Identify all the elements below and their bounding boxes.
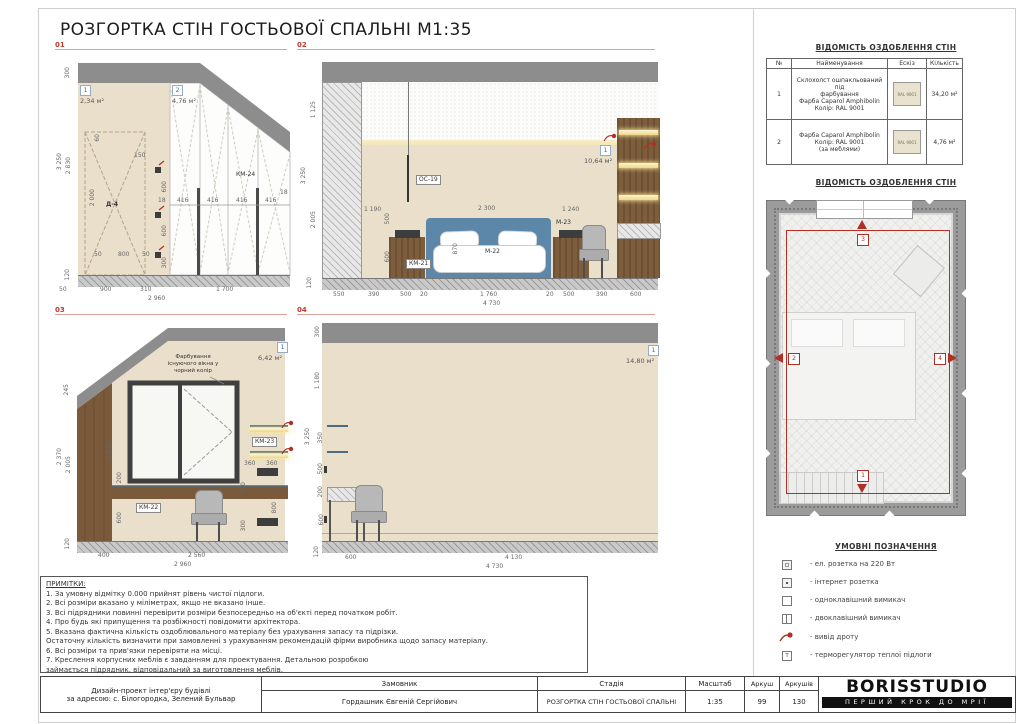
page-title: РОЗГОРТКА СТІН ГОСТЬОВОЇ СПАЛЬНІ М1:35 bbox=[60, 20, 472, 40]
dim-label: 3 250 bbox=[56, 153, 63, 170]
dim-label: 500 bbox=[563, 291, 574, 298]
wall-area-1: 10,64 м² bbox=[584, 157, 612, 165]
dim-label: 3 250 bbox=[300, 167, 307, 184]
finish-table: № Найменування Ескіз Кількість 1 Склохол… bbox=[766, 58, 963, 165]
logo-cell: BORISSTUDIO ПЕРШИЙ КРОК ДО МРІЇ bbox=[818, 677, 1015, 712]
internet-outlet-icon bbox=[782, 578, 792, 588]
legend-item-label: - ел. розетка на 220 Вт bbox=[810, 560, 895, 568]
dim-label: 390 bbox=[596, 291, 607, 298]
elevation-02-line bbox=[297, 49, 655, 50]
dim-label: 300 bbox=[64, 67, 71, 78]
dim-label: 120 bbox=[64, 538, 71, 549]
studio-tagline: ПЕРШИЙ КРОК ДО МРІЇ bbox=[822, 697, 1012, 708]
shelf-tag: КМ-23 bbox=[252, 437, 277, 447]
legend-heading: УМОВНІ ПОЗНАЧЕННЯ bbox=[758, 542, 1014, 551]
desk-tag: КМ-22 bbox=[136, 503, 161, 513]
ral-9001-swatch: RAL 9001 bbox=[893, 130, 921, 154]
floor-hatch bbox=[322, 278, 658, 290]
dim-label: 300 bbox=[314, 326, 321, 337]
dim-label: 600 bbox=[345, 554, 356, 561]
dim-total-label: 4 730 bbox=[486, 563, 503, 570]
row-qty: 34,20 м² bbox=[926, 68, 962, 119]
dim-label: 416 bbox=[177, 197, 188, 204]
dim-label: 150 bbox=[134, 152, 145, 159]
dim-label: 800 bbox=[118, 251, 129, 258]
col-header: № bbox=[767, 59, 791, 68]
scale-cell: Масштаб 1:35 bbox=[685, 677, 744, 712]
dim-label: 400 bbox=[98, 552, 109, 559]
dim-label: 2 830 bbox=[65, 157, 72, 174]
outlet-220-icon bbox=[782, 560, 792, 570]
dim-label: 2 005 bbox=[310, 211, 317, 228]
dim-label: 300 bbox=[240, 520, 247, 531]
dim-label: 500 bbox=[400, 291, 411, 298]
dim-label: 200 bbox=[317, 486, 324, 497]
floor-thermostat-icon: Т bbox=[782, 651, 792, 661]
dim-label: 18 bbox=[280, 189, 288, 196]
stage-cell: Стадія РОЗГОРТКА СТІН ГОСТЬОВОЇ СПАЛЬНІ bbox=[537, 677, 685, 712]
elevation-02-number: 02 bbox=[297, 41, 307, 49]
dim-label: 416 bbox=[207, 197, 218, 204]
row-swatch: RAL 9001 bbox=[887, 119, 926, 164]
wall-area-1: 14,80 м² bbox=[626, 357, 654, 365]
plan-marker-4: 4 bbox=[934, 353, 946, 365]
customer-name: Гордашник Євгеній Сергійович bbox=[262, 691, 537, 712]
dim-label: 1 240 bbox=[562, 206, 579, 213]
row-qty: 4,76 м² bbox=[926, 119, 962, 164]
dim-label: 60 bbox=[94, 134, 101, 142]
elevation-03-line bbox=[55, 314, 287, 315]
dim-label: 500 bbox=[384, 213, 391, 224]
shelf bbox=[327, 425, 348, 427]
marker-2-arrow bbox=[774, 353, 783, 363]
dim-label: 416 bbox=[236, 197, 247, 204]
scale-value: 1:35 bbox=[686, 691, 744, 712]
note-line: 2. Всі розміри вказано у міліметрах, якщ… bbox=[46, 599, 582, 609]
marker-1-arrow bbox=[857, 484, 867, 493]
window-opening bbox=[816, 200, 913, 219]
elevation-04-line bbox=[297, 314, 655, 315]
legend-item-label: - двоклавішний вимикач bbox=[810, 614, 901, 622]
dim-label: 500 bbox=[317, 463, 324, 474]
plan-heading: ВІДОМІСТЬ ОЗДОБЛЕННЯ СТІН bbox=[758, 178, 1014, 187]
wire-icons bbox=[300, 55, 712, 307]
plan-marker-3: 3 bbox=[857, 234, 869, 246]
window-paint-note: Фарбування існуючого вікна у чорний колі… bbox=[158, 354, 228, 375]
dim-label: 120 bbox=[64, 269, 71, 280]
desk-leg bbox=[329, 500, 331, 541]
note-line: 4. Про будь які припущення та розбіжност… bbox=[46, 618, 582, 628]
dim-label: 50 bbox=[142, 251, 150, 258]
dim-label: 390 bbox=[368, 291, 379, 298]
stage-label: Стадія bbox=[538, 677, 685, 691]
shelf bbox=[327, 451, 348, 453]
dim-label: 1 700 bbox=[216, 286, 233, 293]
wall-finish-marker-1: 1 bbox=[648, 345, 659, 356]
elevation-03: 03 bbox=[58, 320, 292, 572]
dim-label: 310 bbox=[140, 286, 151, 293]
sheet-cell: Аркуш 99 bbox=[744, 677, 779, 712]
dim-label: 120 bbox=[313, 546, 320, 557]
wall-finish-marker-1: 1 bbox=[277, 342, 288, 353]
elevation-01-line bbox=[55, 49, 287, 50]
dim-label: 1 180 bbox=[314, 372, 321, 389]
drawing-sheet: РОЗГОРТКА СТІН ГОСТЬОВОЇ СПАЛЬНІ М1:35 0… bbox=[0, 0, 1024, 724]
col-header: Найменування bbox=[791, 59, 887, 68]
row-name: Склохолст ошпакльований під фарбування Ф… bbox=[791, 68, 887, 119]
legend-item-label: - одноклавішний вимикач bbox=[810, 596, 905, 604]
row-num: 1 bbox=[767, 68, 791, 119]
ceiling-band bbox=[322, 323, 658, 343]
plan-marker-2: 2 bbox=[788, 353, 800, 365]
dim-label: 2 275 bbox=[106, 442, 113, 459]
dim-label: 360 bbox=[244, 460, 255, 467]
title-block: Дизайн-проект інтер'єру будівлі за адрес… bbox=[40, 676, 1016, 713]
dim-label: 1 760 bbox=[480, 291, 497, 298]
floor-hatch bbox=[322, 541, 658, 553]
chair-label: М-23 bbox=[556, 219, 571, 226]
elevation-01-number: 01 bbox=[55, 41, 65, 49]
dim-label: 800 bbox=[271, 502, 278, 513]
wall-area-1: 2,34 м² bbox=[80, 97, 104, 105]
dim-label: 360 bbox=[266, 460, 277, 467]
sheets-label: Аркушів bbox=[780, 677, 818, 691]
dim-label: 50 bbox=[94, 251, 102, 258]
wall-finish-marker-1: 1 bbox=[80, 85, 91, 96]
dim-label: 600 bbox=[630, 291, 641, 298]
sheet-label: Аркуш bbox=[745, 677, 779, 691]
chair bbox=[350, 485, 386, 541]
wall-area-2: 4,76 м² bbox=[172, 97, 196, 105]
note-line: 6. Всі розміри та прив'язки перевіряти н… bbox=[46, 647, 582, 657]
dim-label: 700 bbox=[240, 482, 247, 493]
dim-label: 2 000 bbox=[89, 189, 96, 206]
note-line: 7. Креслення корпусних меблів є завдання… bbox=[46, 656, 582, 666]
ral-9001-swatch: RAL 9001 bbox=[893, 82, 921, 106]
dim-label: 600 bbox=[116, 512, 123, 523]
dim-label: 1 125 bbox=[310, 101, 317, 118]
legend-item-label: - вивід дроту bbox=[810, 633, 858, 641]
dim-label: 20 bbox=[546, 291, 554, 298]
double-switch-icon bbox=[782, 614, 792, 624]
dim-label: 2 005 bbox=[65, 456, 72, 473]
elevation-04-number: 04 bbox=[297, 306, 307, 314]
dim-label: 50 bbox=[59, 286, 67, 293]
dim-label: 2 560 bbox=[188, 552, 205, 559]
finish-table-heading: ВІДОМІСТЬ ОЗДОБЛЕННЯ СТІН bbox=[758, 43, 1014, 52]
scale-label: Масштаб bbox=[686, 677, 744, 691]
customer-label: Замовник bbox=[262, 677, 537, 691]
elevation-01: 01 bbox=[58, 55, 292, 307]
elevation-03-number: 03 bbox=[55, 306, 65, 314]
dim-total-label: 2 960 bbox=[148, 295, 165, 302]
elevation-04: 04 1 14,80 м² 300 1 180 3 250 350 500 20… bbox=[300, 320, 712, 572]
legend-item-label: - терморегулятор теплої підлоги bbox=[810, 651, 932, 659]
wall-finish-marker-2: 2 bbox=[172, 85, 183, 96]
dim-label: 18 bbox=[158, 197, 166, 204]
note-line: 5. Вказана фактична кількість оздоблювал… bbox=[46, 628, 582, 638]
dim-total-label: 2 960 bbox=[174, 561, 191, 568]
notes-title: ПРИМІТКИ: bbox=[46, 580, 582, 590]
plan-marker-1: 1 bbox=[857, 470, 869, 482]
door-label: Д-4 bbox=[106, 201, 118, 208]
wire-outlet-icon bbox=[778, 630, 794, 642]
note-line: Остаточну кількість визначити при замовл… bbox=[46, 637, 582, 647]
legend: - ел. розетка на 220 Вт - інтернет розет… bbox=[758, 558, 1014, 663]
dim-label: 245 bbox=[63, 384, 70, 395]
wall-niche bbox=[257, 468, 278, 476]
dim-label: 870 bbox=[452, 243, 459, 254]
project-cell: Дизайн-проект інтер'єру будівлі за адрес… bbox=[41, 677, 261, 712]
wall-area-1: 6,42 м² bbox=[258, 354, 282, 362]
wardrobe-label: КМ-24 bbox=[236, 171, 255, 178]
sheets-cell: Аркушів 130 bbox=[779, 677, 818, 712]
panel-divider bbox=[753, 8, 754, 676]
dim-label: 600 bbox=[318, 514, 325, 525]
wall-socket bbox=[324, 466, 327, 473]
row-num: 2 bbox=[767, 119, 791, 164]
customer-cell: Замовник Гордашник Євгеній Сергійович bbox=[261, 677, 537, 712]
key-plan: 3 2 4 1 bbox=[766, 200, 966, 516]
dim-label: 350 bbox=[317, 432, 324, 443]
dim-total-label: 4 730 bbox=[483, 300, 500, 307]
row-name: Фарба Caparol Amphibolin Колір: RAL 9001… bbox=[791, 119, 887, 164]
sheet-number: 99 bbox=[745, 691, 779, 712]
dim-label: 300 bbox=[161, 257, 168, 268]
note-line: 3. Всі підрядники повинні перевірити роз… bbox=[46, 609, 582, 619]
drawing-title: РОЗГОРТКА СТІН ГОСТЬОВОЇ СПАЛЬНІ bbox=[538, 691, 685, 712]
dim-label: 416 bbox=[265, 197, 276, 204]
bed-label: М-22 bbox=[485, 248, 500, 255]
dim-label: 120 bbox=[306, 277, 313, 288]
note-line: 1. За умовну відмітку 0.000 прийнят ріве… bbox=[46, 590, 582, 600]
dim-label: 20 bbox=[420, 291, 428, 298]
single-switch-icon bbox=[782, 596, 792, 606]
nightstand-tag: КМ-21 bbox=[406, 259, 431, 269]
project-description: Дизайн-проект інтер'єру будівлі за адрес… bbox=[41, 677, 261, 712]
dim-label: 2 370 bbox=[56, 448, 63, 465]
marker-4-arrow bbox=[948, 353, 957, 363]
dim-label: 3 250 bbox=[304, 428, 311, 445]
dim-label: 2 300 bbox=[478, 205, 495, 212]
wall-finish-marker-1: 1 bbox=[600, 145, 611, 156]
elevation-02: 02 ОС-19 1 10,64 м² bbox=[300, 55, 712, 307]
wall-niche bbox=[257, 518, 278, 526]
sheets-total: 130 bbox=[780, 691, 818, 712]
row-swatch: RAL 9001 bbox=[887, 68, 926, 119]
dim-label: 550 bbox=[333, 291, 344, 298]
dim-label: 200 bbox=[116, 472, 123, 483]
marker-3-arrow bbox=[857, 220, 867, 229]
dim-label: 900 bbox=[100, 286, 111, 293]
col-header: Кількість bbox=[926, 59, 962, 68]
dim-label: 600 bbox=[384, 251, 391, 262]
elevation-boundary bbox=[786, 230, 950, 494]
dim-label: 600 bbox=[161, 225, 168, 236]
legend-item-label: - інтернет розетка bbox=[810, 578, 879, 586]
studio-logo: BORISSTUDIO bbox=[819, 677, 1015, 697]
dim-label: 1 190 bbox=[364, 206, 381, 213]
col-header: Ескіз bbox=[887, 59, 926, 68]
note-line: займається підрядник, відповідальний за … bbox=[46, 666, 582, 676]
dim-label: 4 130 bbox=[505, 554, 522, 561]
dim-label: 600 bbox=[161, 181, 168, 192]
notes-block: ПРИМІТКИ: 1. За умовну відмітку 0.000 пр… bbox=[40, 576, 588, 673]
